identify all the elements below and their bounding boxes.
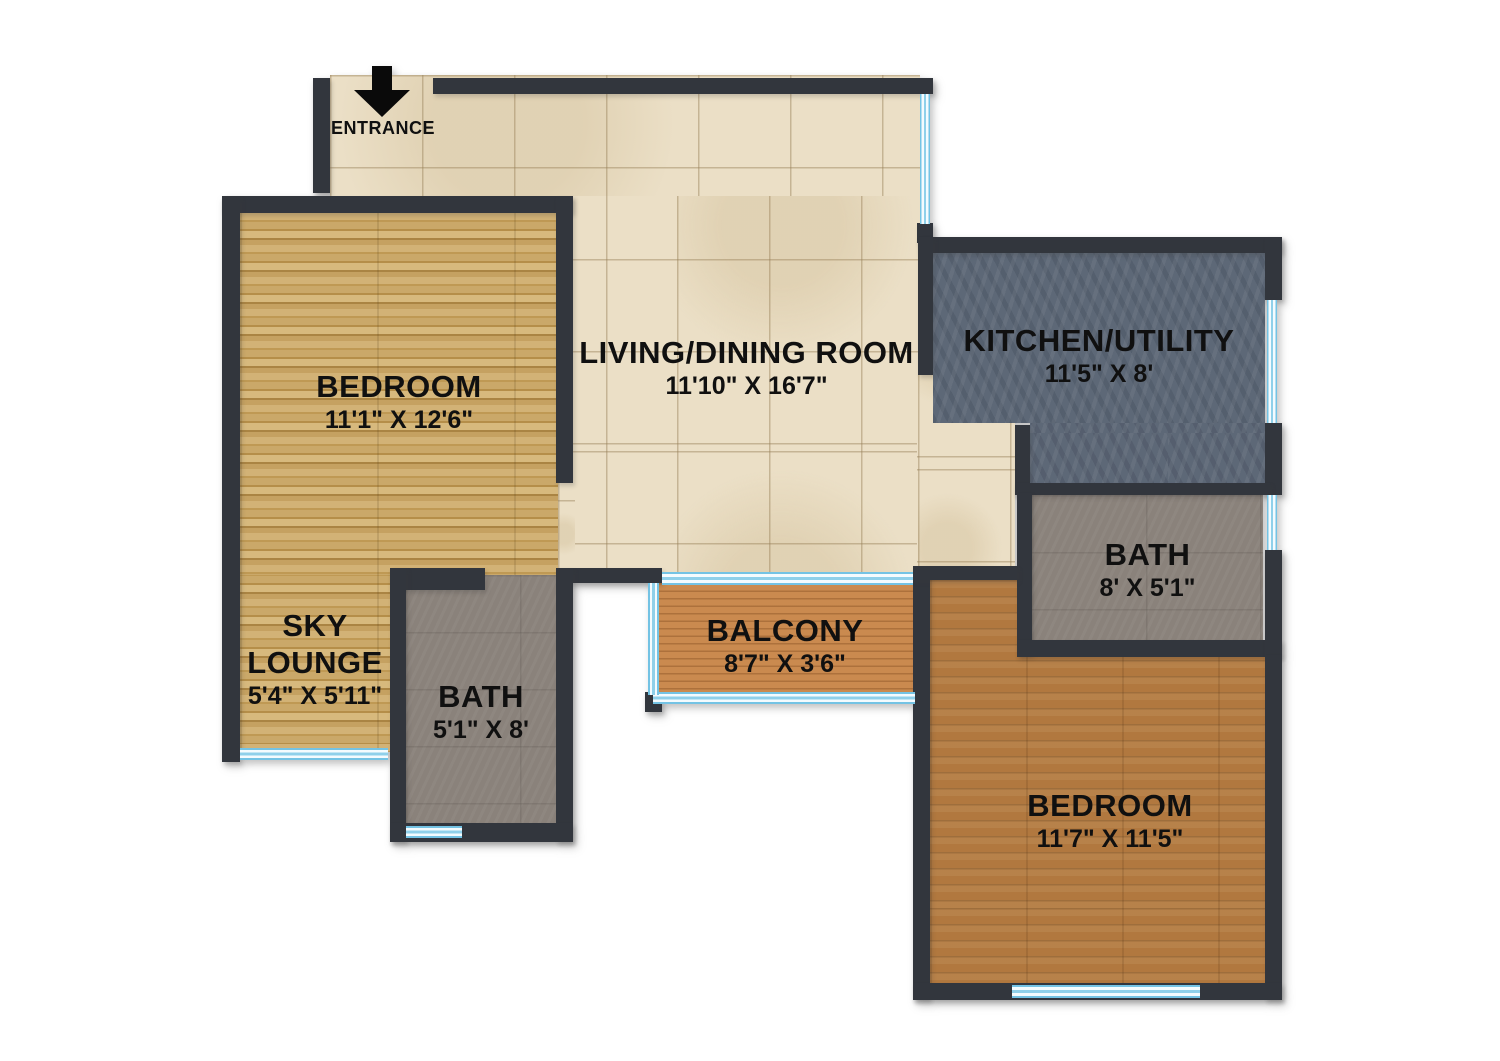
living-dining-floor-door-patch <box>556 483 575 568</box>
wall-entrance-left <box>313 78 330 193</box>
window-living-right <box>920 94 930 224</box>
bath1-dims: 8' X 5'1" <box>1032 573 1263 604</box>
floor-plan: ENTRANCE BEDROOM 11'1" X 12'6" LIVING/DI… <box>0 0 1500 1061</box>
bedroom1-dims: 11'1" X 12'6" <box>240 405 558 436</box>
wall-bedroom2-left <box>913 572 930 1000</box>
living-dining-label: LIVING/DINING ROOM 11'10" X 16'7" <box>573 334 920 402</box>
kitchen-dims: 11'5" X 8' <box>933 359 1265 390</box>
living-dining-dims: 11'10" X 16'7" <box>573 371 920 402</box>
balcony-dims: 8'7" X 3'6" <box>655 649 915 680</box>
wall-kitchen-left <box>918 237 933 375</box>
bath2-dims: 5'1" X 8' <box>396 715 566 746</box>
sky-lounge-label: SKY LOUNGE 5'4" X 5'11" <box>240 607 390 712</box>
bath2-name: BATH <box>396 678 566 715</box>
wall-bath1-left <box>1017 493 1032 655</box>
bedroom1-label: BEDROOM 11'1" X 12'6" <box>240 368 558 436</box>
wall-kitchen-right-upper <box>1265 237 1282 300</box>
bath2-label: BATH 5'1" X 8' <box>396 678 566 746</box>
wall-bath1-right <box>1265 550 1282 657</box>
sky-lounge-name: SKY LOUNGE <box>240 607 390 681</box>
balcony-label: BALCONY 8'7" X 3'6" <box>655 612 915 680</box>
window-bedroom2-bottom <box>1012 985 1200 998</box>
bedroom1-name: BEDROOM <box>240 368 558 405</box>
window-kitchen-right <box>1267 300 1277 423</box>
bedroom2-floor-upper <box>930 580 1017 655</box>
wall-kitchen-bottom <box>1015 483 1270 495</box>
entrance-arrow-head-icon <box>354 90 410 117</box>
window-bath1-right <box>1267 495 1277 550</box>
living-dining-name: LIVING/DINING ROOM <box>573 334 920 371</box>
wall-kitchen-top <box>918 237 1282 253</box>
window-bath2-bottom <box>406 826 462 838</box>
sky-lounge-dims: 5'4" X 5'11" <box>240 681 390 712</box>
kitchen-name: KITCHEN/UTILITY <box>933 322 1265 359</box>
wall-bedroom1-right <box>556 196 573 483</box>
bath1-name: BATH <box>1032 536 1263 573</box>
wall-outer-left <box>222 196 240 762</box>
balcony-name: BALCONY <box>655 612 915 649</box>
kitchen-label: KITCHEN/UTILITY 11'5" X 8' <box>933 322 1265 390</box>
balcony-railing-bottom <box>653 692 915 704</box>
wall-bath1-bottom <box>1017 640 1282 657</box>
wall-living-top <box>433 78 933 94</box>
kitchen-floor-lower <box>1030 423 1265 483</box>
bedroom2-name: BEDROOM <box>945 787 1275 824</box>
bath1-label: BATH 8' X 5'1" <box>1032 536 1263 604</box>
bedroom2-label: BEDROOM 11'7" X 11'5" <box>945 787 1275 855</box>
wall-bedroom2-top <box>913 566 1017 580</box>
bedroom2-dims: 11'7" X 11'5" <box>945 824 1275 855</box>
entrance-arrow-icon <box>372 66 392 92</box>
entrance-label: ENTRANCE <box>331 118 435 139</box>
balcony-sliding-door <box>662 572 913 585</box>
window-sky-lounge-bottom <box>240 748 388 760</box>
wall-bedroom1-top <box>222 196 573 213</box>
